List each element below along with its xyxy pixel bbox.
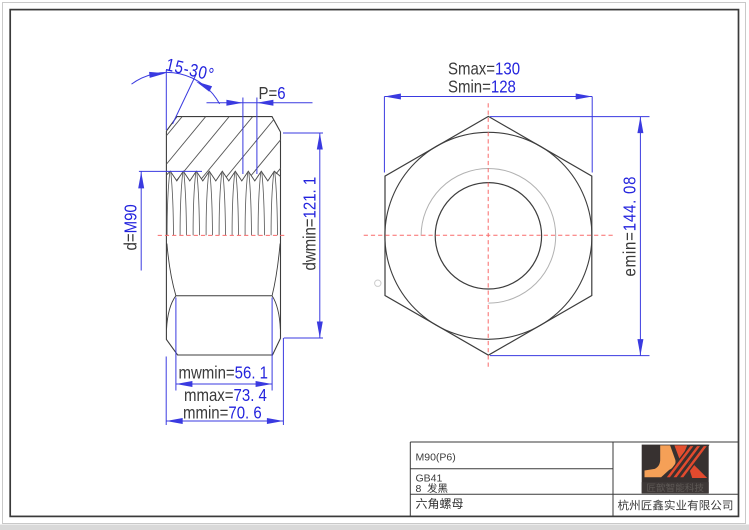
svg-text:Smin=128: Smin=128: [448, 76, 516, 97]
svg-text:mmin=70. 6: mmin=70. 6: [183, 402, 262, 423]
svg-text:dwmin=121. 1: dwmin=121. 1: [299, 177, 320, 271]
svg-text:d=M90: d=M90: [120, 204, 141, 250]
svg-text:8: 8: [416, 483, 422, 495]
svg-text:mwmin=56. 1: mwmin=56. 1: [179, 362, 269, 383]
svg-text:M90(P6): M90(P6): [416, 452, 456, 464]
svg-text:P=6: P=6: [259, 83, 286, 104]
svg-text:emin=144. 08: emin=144. 08: [619, 176, 640, 277]
